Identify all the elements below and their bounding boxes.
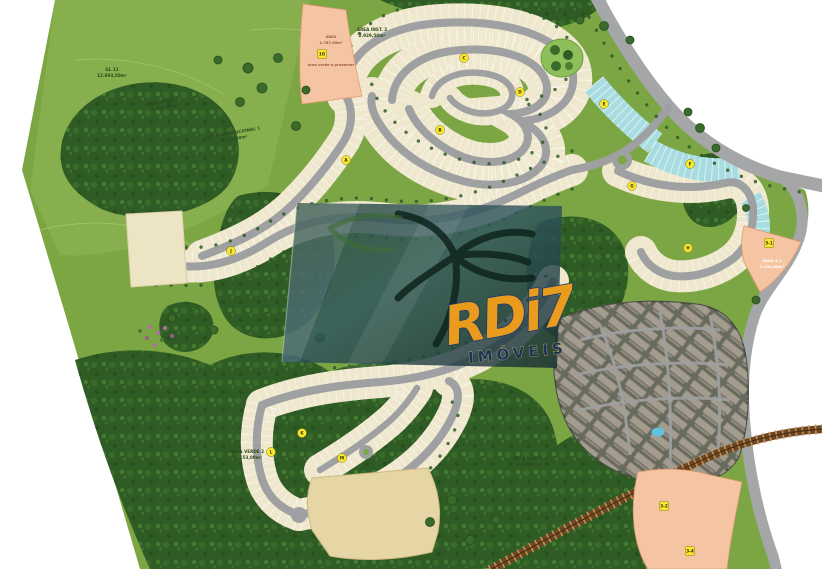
quadra-badge: A (342, 156, 351, 165)
svg-text:L: L (270, 450, 273, 455)
quadra-badge: F (686, 160, 695, 169)
pocket-park (541, 39, 583, 77)
svg-text:F: F (689, 162, 692, 167)
svg-text:ÁREA INST. 2: ÁREA INST. 2 (357, 27, 387, 32)
roundabout (359, 445, 373, 459)
future-development-area (308, 468, 440, 559)
brand-watermark: RDi7 IMÓVEIS (282, 203, 582, 368)
roundabout (612, 150, 632, 170)
svg-text:ÁREA VERDE 2: ÁREA VERDE 2 (230, 449, 264, 454)
svg-text:C: C (462, 56, 465, 61)
quadra-badge: 3-4 (686, 547, 695, 556)
quadra-badge: J (227, 247, 236, 256)
institutional-lot (126, 211, 187, 287)
svg-text:1.787,09m²: 1.787,09m² (319, 41, 342, 45)
svg-text:M: M (340, 456, 344, 461)
svg-text:3-1: 3-1 (765, 241, 773, 246)
quadra-badge: H (684, 244, 693, 253)
svg-text:B: B (438, 128, 441, 133)
quadra-badge: E (600, 100, 609, 109)
svg-text:ÁREA VERDE 3: ÁREA VERDE 3 (513, 456, 547, 461)
site-plan-map: GL 11 12.893,50m² ÁREA VERDE 1 13.414,20… (0, 0, 822, 569)
svg-text:2.150,00m²: 2.150,00m² (760, 264, 785, 269)
svg-text:E: E (603, 102, 606, 107)
svg-text:ÁREA: ÁREA (326, 34, 337, 39)
svg-text:GL 11: GL 11 (105, 67, 118, 72)
svg-text:J: J (229, 249, 232, 254)
quadra-badge: G (628, 182, 637, 191)
quadra-badge: B (436, 126, 445, 135)
svg-text:9.415,00m²: 9.415,00m² (517, 462, 544, 467)
svg-text:H: H (686, 246, 690, 251)
svg-text:17.153,00m²: 17.153,00m² (232, 455, 262, 460)
quadra-badge: 3-2 (660, 502, 669, 511)
site-plan-page: GL 11 12.893,50m² ÁREA VERDE 1 13.414,20… (0, 0, 822, 569)
label-area-3-1: ÁREA 3-1 2.150,00m² (760, 258, 785, 269)
label-area-verde-3: ÁREA VERDE 3 9.415,00m² (513, 456, 547, 467)
pool (652, 428, 665, 437)
svg-text:G: G (630, 184, 634, 189)
svg-text:12.893,50m²: 12.893,50m² (97, 73, 127, 78)
svg-text:área verde a preservar: área verde a preservar (308, 63, 355, 67)
svg-text:3-2: 3-2 (660, 504, 668, 509)
svg-text:ÁREA 3-1: ÁREA 3-1 (762, 258, 782, 263)
quadra-badge: D (516, 88, 525, 97)
label-area-verde-2: ÁREA VERDE 2 17.153,00m² (230, 449, 264, 460)
quadra-badge: L (267, 448, 276, 457)
quadra-badge: 3-1 (765, 239, 774, 248)
svg-text:1G: 1G (319, 52, 326, 57)
label-area-inst-2: ÁREA INST. 2 2.929,50m² (357, 27, 387, 38)
quadra-badge: M (338, 454, 347, 463)
svg-text:D: D (518, 90, 522, 95)
quadra-badge: 1G (318, 50, 327, 59)
svg-text:3-4: 3-4 (686, 549, 694, 554)
svg-text:2.929,50m²: 2.929,50m² (359, 33, 386, 38)
quadra-badge: K (298, 429, 307, 438)
quadra-badge: C (460, 54, 469, 63)
cul-de-sac (291, 507, 307, 523)
